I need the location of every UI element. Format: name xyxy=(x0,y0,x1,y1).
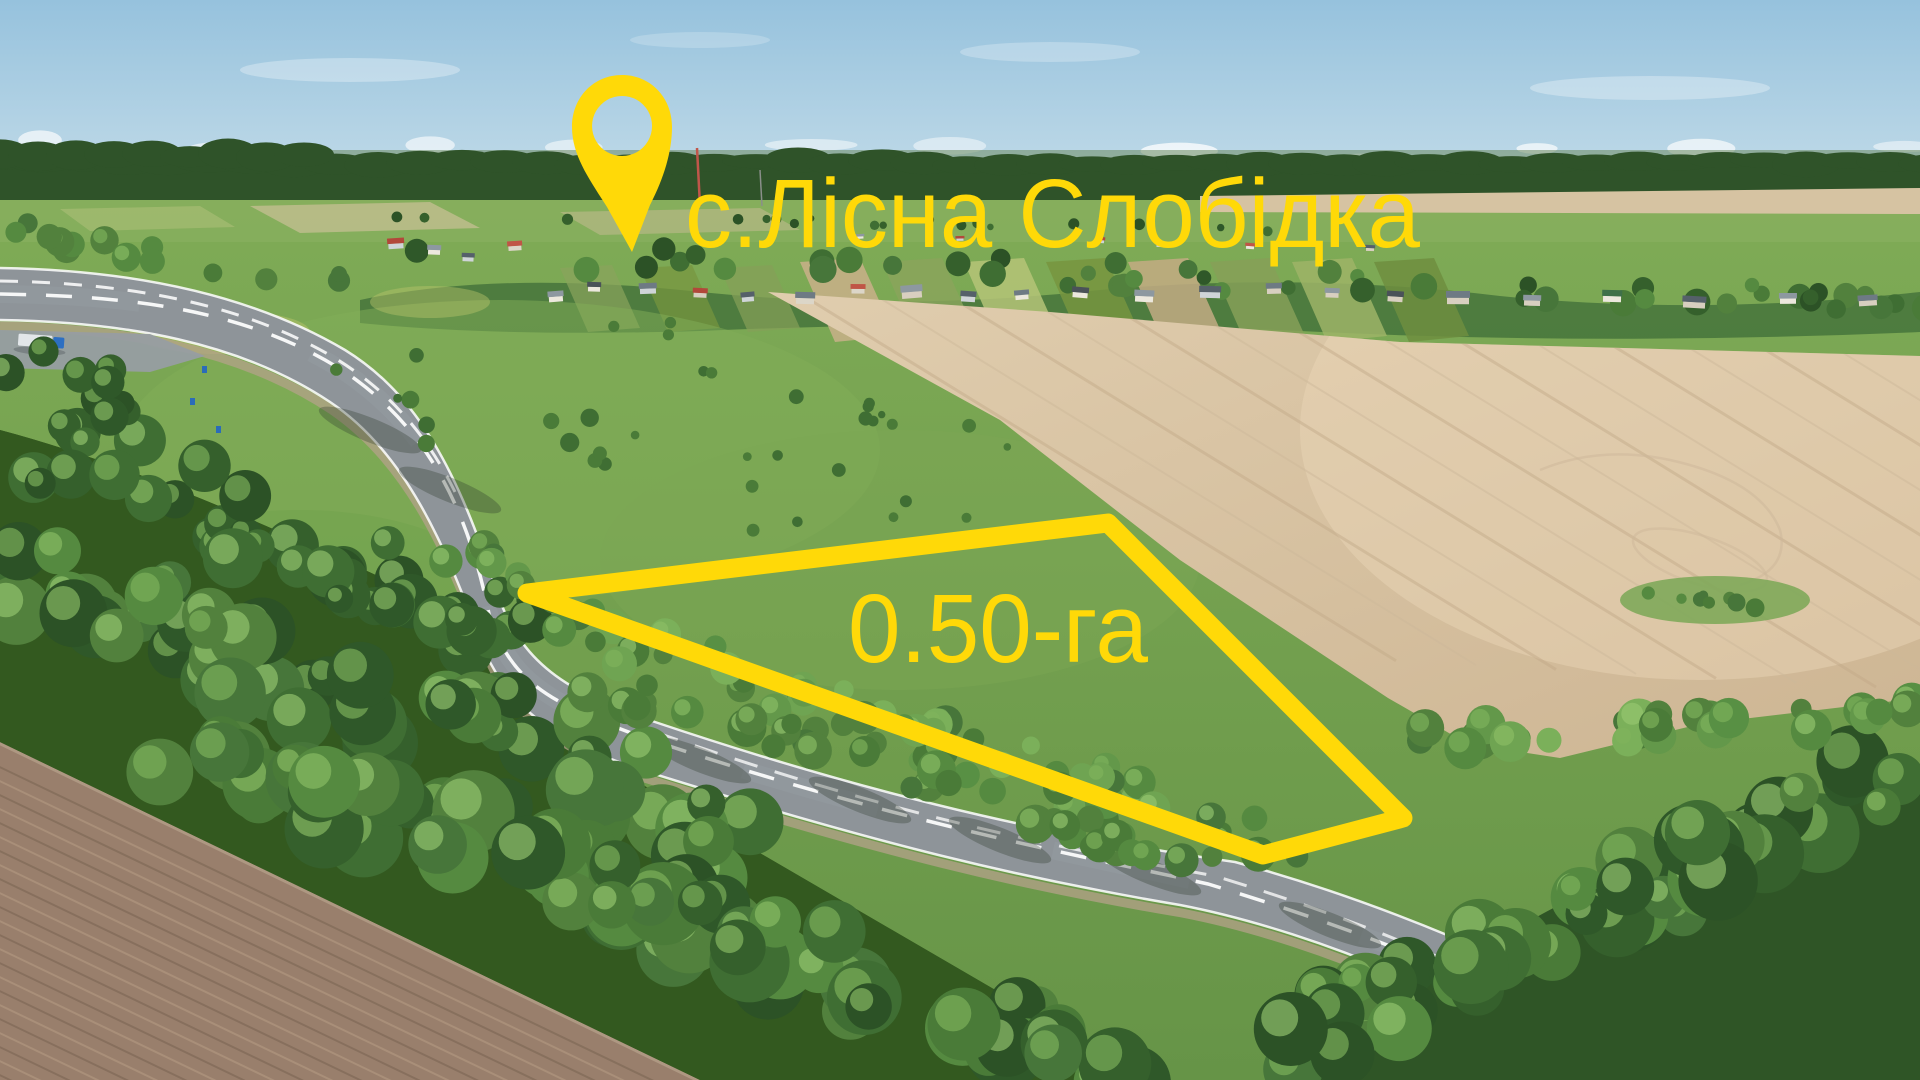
plot-area-label: 0.50-га xyxy=(848,574,1148,683)
field-green-island xyxy=(1620,576,1810,624)
village-name-label: с.Лісна Слобідка xyxy=(685,159,1420,268)
aerial-photo-canvas: с.Лісна Слобідка 0.50-га xyxy=(0,0,1920,1080)
aerial-photo: с.Лісна Слобідка 0.50-га xyxy=(0,0,1920,1080)
